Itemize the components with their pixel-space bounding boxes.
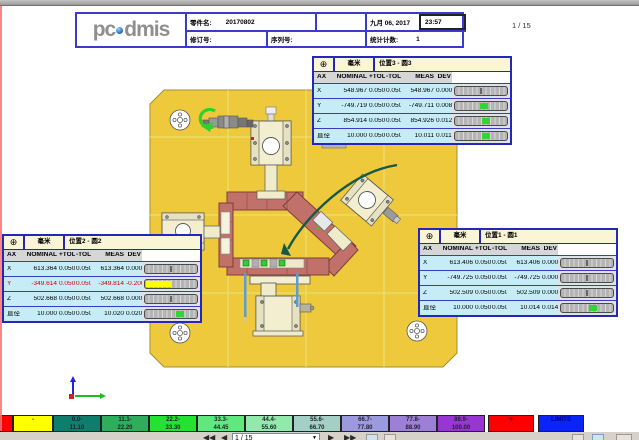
deviation-bar-track — [144, 279, 198, 289]
deviation-bar-track — [560, 303, 614, 313]
report-toolbar: ◀◀ ◀ 1 / 15 ▼ ▶ ▶▶ — [0, 432, 639, 440]
dimension-row: Y-749.7250.0500.050-749.7250.000 — [420, 270, 616, 285]
deviation-bar — [454, 131, 508, 141]
dim-cell-nominal: 854.914 — [330, 118, 368, 125]
dim-cell-nominal: 502.668 — [20, 296, 58, 303]
deviation-bar-track — [560, 288, 614, 298]
part-name-value: 20170802 — [226, 19, 255, 26]
dim-cell-ptol: 0.050 — [58, 281, 75, 288]
deviation-bar — [454, 101, 508, 111]
dim-cell-ptol: 0.050 — [368, 88, 385, 95]
deviation-bar-track — [454, 101, 508, 111]
deviation-colorbar: -0.0-11.1011.1-22.2022.2-33.3033.3-44.45… — [0, 415, 639, 432]
dim-cell-ntol: 0.050 — [491, 305, 507, 312]
column-header-row: AXNOMINAL+TOL-TOLMEASDEV — [314, 72, 452, 83]
deviation-bar-track — [144, 309, 198, 319]
colorbar-segment-range: 11.10 — [54, 424, 100, 432]
dimension-title: 位置1 - 圆1 — [481, 230, 616, 243]
colorbar-segment: 77.8-88.90 — [389, 415, 437, 432]
stats-count-value: 1 — [416, 36, 420, 43]
logo-text-pc: pc — [93, 18, 116, 41]
column-header: MEAS — [507, 246, 541, 253]
colorbar-segment-label: 77.8- — [390, 416, 436, 424]
dim-cell-ptol: 0.050 — [368, 118, 385, 125]
time-cell: 23:57 — [419, 14, 466, 30]
dimension-row: Y-349.6140.0500.050-349.814-0.200 — [4, 276, 200, 291]
left-edge-line — [0, 6, 2, 431]
prev-page-button[interactable]: ◀ — [221, 433, 227, 440]
column-header: MEAS — [401, 74, 435, 81]
dimension-table-pos3: ⊕毫米位置3 - 圆3AXNOMINAL+TOL-TOLMEASDEVX548.… — [312, 56, 512, 145]
out-of-tolerance-indicator — [146, 281, 171, 287]
deviation-bar — [560, 303, 614, 313]
deviation-indicator — [176, 311, 184, 317]
colorbar-segment: - — [13, 415, 53, 432]
units-label: 毫米 — [441, 230, 481, 243]
dimension-title: 位置2 - 圆2 — [65, 236, 200, 249]
dim-cell-ptol: 0.050 — [474, 305, 491, 312]
colorbar-segment: LIMITS — [538, 415, 584, 432]
dim-cell-meas: -749.711 — [401, 103, 435, 110]
column-header: -TOL — [75, 252, 91, 259]
colorbar-segment-label: LIMITS — [539, 416, 583, 424]
zero-deviation-indicator — [170, 266, 172, 272]
dimension-row: Z502.6680.0500.050502.6680.000 — [4, 291, 200, 306]
dim-cell-ax: 直径 — [4, 311, 20, 318]
dim-cell-ntol: 0.050 — [385, 88, 401, 95]
column-header: +TOL — [58, 252, 75, 259]
colorbar-segment-label: 0.0- — [54, 416, 100, 424]
deviation-bar — [144, 279, 198, 289]
position-symbol-icon: ⊕ — [420, 230, 441, 243]
column-header: AX — [420, 246, 436, 253]
units-label: 毫米 — [25, 236, 65, 249]
dim-cell-meas: -749.725 — [507, 275, 541, 282]
dim-cell-dev: 0.000 — [125, 296, 142, 303]
revision-cell: 修订号: — [185, 30, 266, 46]
dimension-row: X613.4060.0500.050613.4060.000 — [420, 255, 616, 270]
dim-cell-meas: 854.926 — [401, 118, 435, 125]
dim-cell-ax: Y — [420, 275, 436, 282]
header-spacer-cell — [315, 14, 365, 30]
column-header: DEV — [435, 74, 452, 81]
revision-label: 修订号: — [190, 34, 212, 44]
colorbar-segment-label: 33.3- — [198, 416, 244, 424]
colorbar-segment-range: 33.30 — [150, 424, 196, 432]
dim-cell-dev: 0.000 — [541, 260, 558, 267]
continuous-view-button[interactable] — [592, 434, 604, 440]
colorbar-segment-label: 11.1- — [102, 416, 148, 424]
colorbar-segment-label: + — [489, 416, 533, 424]
colorbar-segment-label: 66.7- — [342, 416, 388, 424]
deviation-bar — [560, 288, 614, 298]
dim-cell-meas: 10.014 — [507, 305, 541, 312]
column-header: -TOL — [491, 246, 507, 253]
deviation-bar — [454, 116, 508, 126]
colorbar-segment-range: 88.90 — [390, 424, 436, 432]
dim-cell-nominal: 548.967 — [330, 88, 368, 95]
deviation-bar — [560, 273, 614, 283]
last-page-button[interactable]: ▶▶ — [344, 433, 356, 440]
dimension-table-pos1: ⊕毫米位置1 - 圆1AXNOMINAL+TOL-TOLMEASDEVX613.… — [418, 228, 618, 317]
dim-cell-ax: Z — [314, 118, 330, 125]
dim-cell-meas: 548.967 — [401, 88, 435, 95]
part-name-label: 零件名: — [190, 17, 212, 27]
dim-cell-ax: X — [420, 260, 436, 267]
dim-cell-dev: 0.000 — [541, 275, 558, 282]
dim-cell-ntol: 0.050 — [491, 260, 507, 267]
column-header: AX — [4, 252, 20, 259]
dim-cell-dev: -0.200 — [125, 281, 142, 288]
dim-cell-dev: 0.000 — [125, 266, 142, 273]
dim-cell-ntol: 0.050 — [491, 275, 507, 282]
dim-cell-ptol: 0.050 — [474, 290, 491, 297]
dim-cell-nominal: 10.000 — [436, 305, 474, 312]
dimension-row: X548.9670.0500.050548.9670.000 — [314, 83, 510, 98]
colorbar-segment-range: 66.70 — [294, 424, 340, 432]
column-header: NOMINAL — [330, 74, 368, 81]
deviation-bar-track — [144, 294, 198, 304]
colorbar-segment: 22.2-33.30 — [149, 415, 197, 432]
position-symbol-icon: ⊕ — [4, 236, 25, 249]
column-header-row: AXNOMINAL+TOL-TOLMEASDEV — [4, 250, 142, 261]
colorbar-segment: 0.0-11.10 — [53, 415, 101, 432]
deviation-bar-track — [454, 86, 508, 96]
dim-cell-ax: Z — [420, 290, 436, 297]
dimension-table-header: ⊕毫米位置1 - 圆1 — [420, 230, 616, 244]
first-page-button[interactable]: ◀◀ — [203, 433, 215, 440]
window-chrome-bar — [0, 0, 639, 6]
deviation-indicator — [482, 118, 490, 124]
dim-cell-dev: 0.012 — [435, 118, 452, 125]
deviation-bar — [144, 309, 198, 319]
column-header: DEV — [541, 246, 558, 253]
dim-cell-meas: 502.668 — [91, 296, 125, 303]
colorbar-segment-label: 88.9- — [438, 416, 484, 424]
dim-cell-ptol: 0.050 — [58, 266, 75, 273]
dim-cell-ntol: 0.050 — [385, 133, 401, 140]
column-header: +TOL — [474, 246, 491, 253]
chevron-down-icon: ▼ — [312, 435, 317, 440]
dim-cell-nominal: -349.614 — [20, 281, 58, 288]
deviation-bar-track — [454, 116, 508, 126]
multi-page-view-button[interactable] — [616, 434, 632, 440]
position-symbol-icon: ⊕ — [314, 58, 335, 71]
dim-cell-ntol: 0.050 — [75, 281, 91, 288]
colorbar-segment: 55.6-66.70 — [293, 415, 341, 432]
date-value: 九月 06, 2017 — [370, 17, 410, 27]
dim-cell-ntol: 0.050 — [75, 296, 91, 303]
colorbar-segment-range: 22.20 — [102, 424, 148, 432]
deviation-indicator — [480, 103, 488, 109]
deviation-indicator — [482, 133, 490, 139]
dim-cell-ax: X — [4, 266, 20, 273]
dim-cell-nominal: -749.719 — [330, 103, 368, 110]
dim-cell-dev: 0.008 — [435, 103, 452, 110]
part-name-cell: 零件名: 20170802 — [185, 14, 315, 30]
dim-cell-ax: 直径 — [420, 305, 436, 312]
dimension-table-pos2: ⊕毫米位置2 - 圆2AXNOMINAL+TOL-TOLMEASDEVX613.… — [2, 234, 202, 323]
logo-text-dmis: dmis — [124, 18, 169, 41]
column-header-row: AXNOMINAL+TOL-TOLMEASDEV — [420, 244, 558, 255]
dim-cell-ntol: 0.050 — [491, 290, 507, 297]
dim-cell-dev: 0.000 — [541, 290, 558, 297]
column-header: DEV — [125, 252, 142, 259]
colorbar-segment: 33.3-44.45 — [197, 415, 245, 432]
toolbar-button-a[interactable] — [366, 434, 378, 440]
dim-cell-ax: Y — [314, 103, 330, 110]
zero-deviation-indicator — [480, 88, 482, 94]
dimension-row: 直径10.0000.0500.05010.0110.011 — [314, 128, 510, 143]
page-select[interactable]: 1 / 15 ▼ — [232, 433, 320, 440]
page-indicator: 1 / 15 — [512, 21, 531, 30]
colorbar-segment: 66.7-77.80 — [341, 415, 389, 432]
deviation-bar — [454, 86, 508, 96]
deviation-bar-track — [144, 264, 198, 274]
dim-cell-meas: 613.406 — [507, 260, 541, 267]
column-header: -TOL — [385, 74, 401, 81]
zero-deviation-indicator — [170, 296, 172, 302]
dim-cell-nominal: 502.509 — [436, 290, 474, 297]
dim-cell-ptol: 0.050 — [368, 133, 385, 140]
dimension-title: 位置3 - 圆3 — [375, 58, 510, 71]
dim-cell-meas: 10.011 — [401, 133, 435, 140]
units-label: 毫米 — [335, 58, 375, 71]
dim-cell-nominal: 613.406 — [436, 260, 474, 267]
column-header: NOMINAL — [436, 246, 474, 253]
dim-cell-ptol: 0.050 — [474, 275, 491, 282]
date-cell: 九月 06, 2017 — [365, 14, 419, 30]
colorbar-segment: 88.9-100.00 — [437, 415, 485, 432]
deviation-bar — [144, 264, 198, 274]
dim-cell-meas: 502.509 — [507, 290, 541, 297]
colorbar-segment-label: 44.4- — [246, 416, 292, 424]
deviation-bar — [560, 258, 614, 268]
dimension-table-header: ⊕毫米位置3 - 圆3 — [314, 58, 510, 72]
page-select-value: 1 / 15 — [235, 435, 253, 440]
single-page-view-button[interactable] — [572, 434, 584, 440]
dim-cell-ax: 直径 — [314, 133, 330, 140]
colorbar-segment-range: 100.00 — [438, 424, 484, 432]
dim-cell-dev: 0.020 — [125, 311, 142, 318]
dim-cell-ptol: 0.050 — [58, 296, 75, 303]
colorbar-segment-label: - — [14, 416, 52, 424]
deviation-bar-track — [560, 273, 614, 283]
colorbar-segment: 11.1-22.20 — [101, 415, 149, 432]
dim-cell-dev: 0.011 — [435, 133, 452, 140]
dimension-row: 直径10.0000.0500.05010.0200.020 — [4, 306, 200, 321]
column-header: +TOL — [368, 74, 385, 81]
dim-cell-nominal: 10.000 — [330, 133, 368, 140]
toolbar-button-b[interactable] — [384, 434, 396, 440]
serial-label: 序列号: — [271, 34, 293, 44]
dim-cell-meas: 613.364 — [91, 266, 125, 273]
colorbar-segment: + — [488, 415, 534, 432]
dim-cell-ntol: 0.050 — [75, 266, 91, 273]
colorbar-segment-range: 55.60 — [246, 424, 292, 432]
dimension-table-header: ⊕毫米位置2 - 圆2 — [4, 236, 200, 250]
zero-deviation-indicator — [586, 290, 588, 296]
dimension-row: Z502.5090.0500.050502.5090.000 — [420, 285, 616, 300]
dim-cell-meas: 10.020 — [91, 311, 125, 318]
column-header: AX — [314, 74, 330, 81]
dim-cell-ntol: 0.050 — [75, 311, 91, 318]
dim-cell-ptol: 0.050 — [58, 311, 75, 318]
pcdmis-report-window: pcdmis 零件名: 20170802 九月 06, 2017 23:57 修… — [0, 0, 639, 440]
dimension-row: Y-749.7190.0500.050-749.7110.008 — [314, 98, 510, 113]
dim-cell-ax: X — [314, 88, 330, 95]
pcdmis-logo: pcdmis — [77, 14, 185, 46]
dim-cell-nominal: 613.364 — [20, 266, 58, 273]
stats-count-cell: 统计计数: 1 — [365, 30, 466, 46]
colorbar-segment-label: 22.2- — [150, 416, 196, 424]
dim-cell-nominal: 10.000 — [20, 311, 58, 318]
dim-cell-ntol: 0.050 — [385, 118, 401, 125]
dim-cell-ax: Z — [4, 296, 20, 303]
zero-deviation-indicator — [586, 260, 588, 266]
serial-cell: 序列号: — [266, 30, 365, 46]
dimension-row: X613.3640.0500.050613.3640.000 — [4, 261, 200, 276]
stats-count-label: 统计计数: — [370, 34, 398, 44]
dim-cell-ntol: 0.050 — [385, 103, 401, 110]
column-header: MEAS — [91, 252, 125, 259]
dim-cell-ax: Y — [4, 281, 20, 288]
colorbar-segment: 44.4-55.60 — [245, 415, 293, 432]
dim-cell-ptol: 0.050 — [368, 103, 385, 110]
dimension-row: 直径10.0000.0500.05010.0140.014 — [420, 300, 616, 315]
logo-dot-icon — [116, 27, 123, 34]
colorbar-segment-range: 44.45 — [198, 424, 244, 432]
time-value: 23:57 — [425, 19, 442, 26]
deviation-bar — [144, 294, 198, 304]
dim-cell-ptol: 0.050 — [474, 260, 491, 267]
dim-cell-dev: 0.014 — [541, 305, 558, 312]
report-header: pcdmis 零件名: 20170802 九月 06, 2017 23:57 修… — [75, 12, 464, 48]
dim-cell-meas: -349.814 — [91, 281, 125, 288]
deviation-bar-track — [560, 258, 614, 268]
next-page-button[interactable]: ▶ — [328, 433, 334, 440]
zero-deviation-indicator — [586, 275, 588, 281]
column-header: NOMINAL — [20, 252, 58, 259]
colorbar-segment-label: 55.6- — [294, 416, 340, 424]
deviation-bar-track — [454, 131, 508, 141]
colorbar-segment-range: 77.80 — [342, 424, 388, 432]
dimension-row: Z854.9140.0500.050854.9260.012 — [314, 113, 510, 128]
axis-triad-icon — [69, 376, 106, 399]
dim-cell-nominal: -749.725 — [436, 275, 474, 282]
deviation-indicator — [589, 305, 597, 311]
dim-cell-dev: 0.000 — [435, 88, 452, 95]
